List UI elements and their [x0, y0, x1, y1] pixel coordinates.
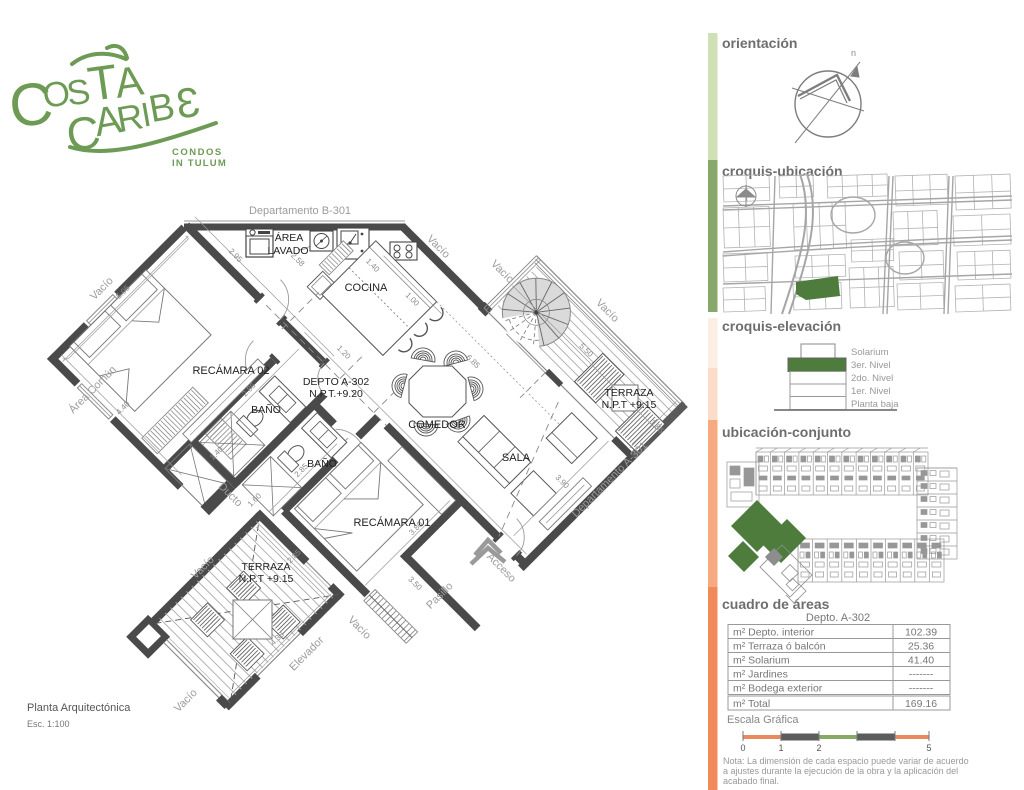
svg-text:0: 0: [740, 743, 745, 753]
svg-text:ubicación-conjunto: ubicación-conjunto: [722, 424, 851, 440]
svg-text:TERRAZA: TERRAZA: [604, 387, 653, 399]
svg-text:1: 1: [778, 743, 783, 753]
svg-text:-------: -------: [909, 683, 934, 695]
svg-text:acabado final.: acabado final.: [723, 776, 779, 786]
svg-text:41.40: 41.40: [908, 655, 934, 667]
svg-text:m² Total: m² Total: [733, 698, 770, 710]
svg-text:169.16: 169.16: [905, 698, 937, 710]
svg-text:1er. Nivel: 1er. Nivel: [851, 386, 891, 397]
svg-text:Esc. 1:100: Esc. 1:100: [27, 719, 70, 729]
svg-text:m² Depto. interior: m² Depto. interior: [733, 627, 815, 639]
svg-text:TERRAZA: TERRAZA: [241, 561, 290, 573]
svg-text:-------: -------: [909, 669, 934, 681]
svg-text:RECÁMARA 01: RECÁMARA 01: [353, 516, 430, 529]
svg-text:SALA: SALA: [502, 452, 531, 464]
svg-text:5: 5: [926, 743, 931, 753]
svg-text:DEPTO A-302: DEPTO A-302: [303, 376, 369, 388]
svg-text:m² Jardines: m² Jardines: [733, 669, 788, 681]
svg-text:N.P.T.+9.20: N.P.T.+9.20: [309, 388, 363, 400]
svg-text:Planta baja: Planta baja: [851, 399, 899, 410]
svg-text:Solarium: Solarium: [851, 347, 889, 358]
svg-text:orientación: orientación: [722, 35, 797, 51]
svg-text:N.P.T +9.15: N.P.T +9.15: [602, 399, 657, 411]
svg-text:croquis-elevación: croquis-elevación: [722, 318, 841, 334]
svg-text:n: n: [851, 48, 856, 58]
svg-text:m² Terraza ó balcón: m² Terraza ó balcón: [733, 641, 826, 653]
svg-text:2: 2: [816, 743, 821, 753]
svg-text:LAVADO: LAVADO: [267, 245, 308, 257]
svg-text:CONDOS: CONDOS: [172, 147, 223, 158]
svg-text:croquis-ubicación: croquis-ubicación: [722, 163, 843, 179]
svg-text:RECÁMARA 02: RECÁMARA 02: [192, 364, 269, 377]
svg-text:3er. Nivel: 3er. Nivel: [851, 360, 891, 371]
svg-text:ÁREA: ÁREA: [275, 231, 304, 244]
svg-text:cuadro de áreas: cuadro de áreas: [722, 596, 830, 612]
svg-text:N.P.T +9.15: N.P.T +9.15: [239, 573, 294, 585]
svg-text:2do. Nivel: 2do. Nivel: [851, 373, 893, 384]
svg-text:BAÑO: BAÑO: [307, 457, 337, 470]
svg-text:Depto. A-302: Depto. A-302: [806, 612, 870, 624]
svg-text:Escala Gráfica: Escala Gráfica: [727, 714, 799, 726]
svg-text:102.39: 102.39: [905, 627, 937, 639]
svg-text:Departamento B-301: Departamento B-301: [249, 205, 351, 217]
svg-text:m² Bodega exterior: m² Bodega exterior: [733, 683, 823, 695]
svg-text:m² Solarium: m² Solarium: [733, 655, 790, 667]
svg-text:Planta Arquitectónica: Planta Arquitectónica: [27, 702, 131, 714]
svg-text:COMEDOR: COMEDOR: [408, 419, 466, 431]
svg-text:Nota: La dimensión de cada esp: Nota: La dimensión de cada espacio puede…: [723, 756, 969, 766]
svg-text:a ajustes durante la ejecución: a ajustes durante la ejecución de la obr…: [723, 766, 958, 776]
svg-text:COCINA: COCINA: [345, 282, 388, 294]
svg-text:25.36: 25.36: [908, 641, 934, 653]
svg-text:BAÑO: BAÑO: [251, 403, 281, 416]
svg-text:IN TULUM: IN TULUM: [172, 158, 227, 169]
